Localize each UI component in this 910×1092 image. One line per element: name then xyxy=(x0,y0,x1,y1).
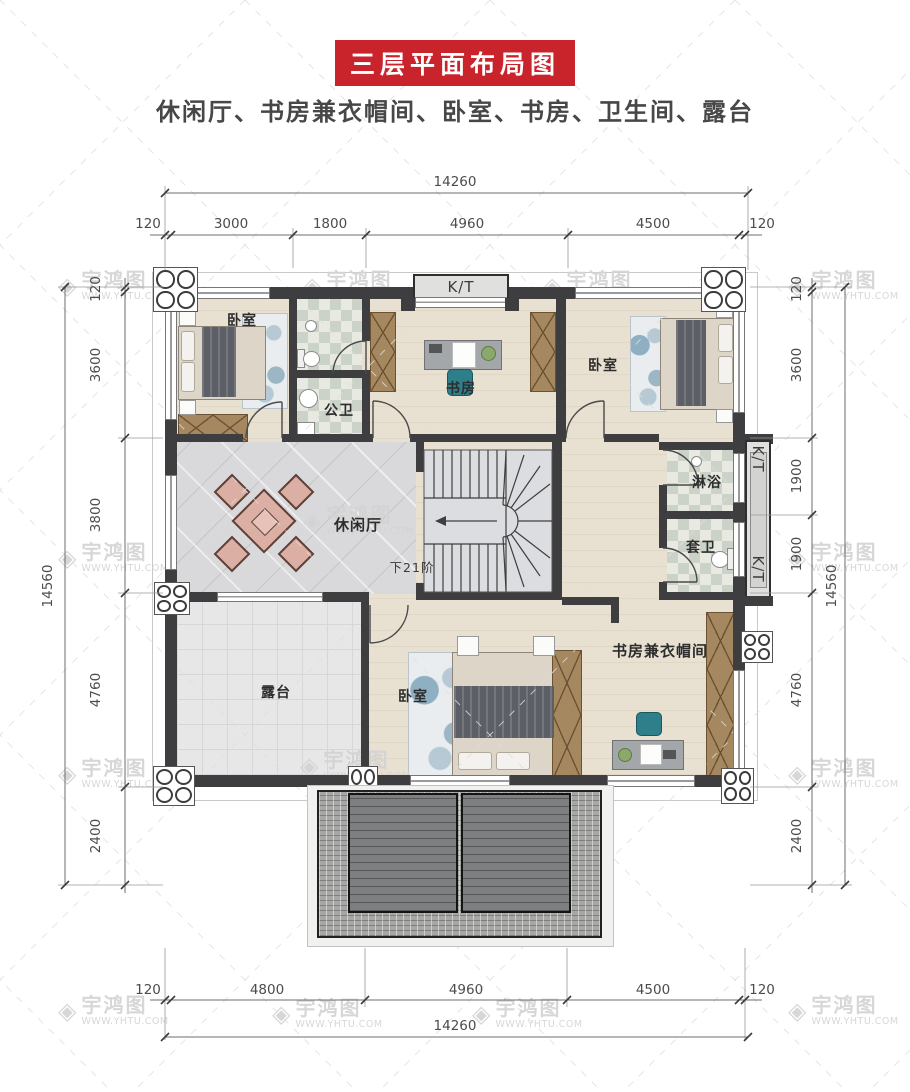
dim-top-seg5: 120 xyxy=(740,216,784,232)
window xyxy=(165,310,177,420)
wall xyxy=(165,420,177,475)
pillow xyxy=(718,324,733,352)
room-label-leisure-hall: 休闲厅 xyxy=(320,514,396,535)
dim-left-seg3: 4760 xyxy=(88,655,104,725)
wall xyxy=(505,298,519,311)
window xyxy=(733,522,745,577)
dim-right-seg1: 3600 xyxy=(789,330,805,400)
dim-top-seg0: 120 xyxy=(126,216,170,232)
watermark: ◈宇鸿图WWW.YHTU.COM xyxy=(788,995,899,1027)
yhtu-logo-icon: ◈ xyxy=(58,546,76,570)
dim-bottom-seg2: 4960 xyxy=(431,982,501,998)
room-label-shower: 淋浴 xyxy=(682,472,732,492)
wall xyxy=(611,597,619,623)
wardrobe-divider xyxy=(552,650,582,780)
blanket xyxy=(676,320,706,406)
window xyxy=(575,287,713,299)
wardrobe xyxy=(370,312,396,392)
room-label-terrace: 露台 xyxy=(248,682,304,702)
desk-papers xyxy=(452,342,476,368)
nightstand xyxy=(533,636,555,656)
toilet-bowl xyxy=(303,351,320,367)
dim-right-seg2: 1900 xyxy=(789,441,805,511)
yhtu-logo-icon: ◈ xyxy=(58,762,76,786)
floorplan-page: 三层平面布局图 休闲厅、书房兼衣帽间、卧室、书房、卫生间、露台 xyxy=(0,0,910,1092)
pillow xyxy=(496,752,530,770)
corner-column xyxy=(153,766,195,806)
plant xyxy=(481,346,496,361)
wall xyxy=(270,287,415,299)
shower-drain xyxy=(305,320,317,332)
wall xyxy=(410,434,556,442)
kt-label-right-upper: K/T xyxy=(749,444,767,474)
shower-head xyxy=(691,456,702,467)
wall xyxy=(604,434,659,442)
plant xyxy=(618,748,632,762)
room-label-study: 书房 xyxy=(436,378,486,398)
dim-bottom-seg4: 120 xyxy=(740,982,784,998)
corner-column xyxy=(721,768,754,804)
window xyxy=(733,670,745,770)
wall xyxy=(282,434,366,442)
dim-left-seg0: 120 xyxy=(88,254,104,324)
room-label-study-cloakroom: 书房兼衣帽间 xyxy=(600,640,720,661)
pillow xyxy=(181,331,195,361)
wall xyxy=(659,592,745,600)
window xyxy=(733,307,745,413)
nightstand xyxy=(179,400,196,415)
dim-bottom-seg1: 4800 xyxy=(232,982,302,998)
wall xyxy=(361,597,369,775)
room-label-bedroom-top-right: 卧室 xyxy=(578,355,628,375)
wall xyxy=(659,442,667,450)
dim-right-seg0: 120 xyxy=(789,254,805,324)
corner-column xyxy=(154,582,190,615)
laptop xyxy=(429,344,442,353)
wall xyxy=(289,370,370,378)
wall xyxy=(416,442,424,472)
kt-label-top: K/T xyxy=(433,278,489,296)
corner-column xyxy=(741,631,773,663)
dim-left-total: 14560 xyxy=(40,541,56,631)
room-label-ensuite: 套卫 xyxy=(676,537,726,557)
dim-right-seg4: 4760 xyxy=(789,655,805,725)
dim-bottom-total: 14260 xyxy=(380,1018,530,1034)
stairs-note: 下21阶 xyxy=(382,557,442,576)
yhtu-logo-icon: ◈ xyxy=(788,762,806,786)
pillow xyxy=(458,752,492,770)
page-subtitle: 休闲厅、书房兼衣帽间、卧室、书房、卫生间、露台 xyxy=(0,92,910,127)
blanket xyxy=(454,686,554,738)
watermark: ◈宇鸿图WWW.YHTU.COM xyxy=(272,998,383,1030)
pillow xyxy=(718,356,733,384)
dim-top-seg1: 3000 xyxy=(196,216,266,232)
yhtu-logo-icon: ◈ xyxy=(272,1002,290,1026)
corner-column xyxy=(153,267,198,312)
yhtu-logo-icon: ◈ xyxy=(58,999,76,1023)
dim-right-seg3: 1900 xyxy=(789,519,805,589)
wall xyxy=(401,298,415,311)
desk-chair xyxy=(636,712,662,736)
dim-bottom-seg0: 120 xyxy=(126,982,170,998)
kt-label-right-lower: K/T xyxy=(749,554,767,584)
dim-left-seg4: 2400 xyxy=(88,801,104,871)
nightstand xyxy=(179,310,196,326)
pillow xyxy=(181,362,195,392)
window xyxy=(607,775,695,787)
watermark: ◈宇鸿图WWW.YHTU.COM xyxy=(58,995,169,1027)
corner-column xyxy=(701,267,746,312)
dim-right-total: 14560 xyxy=(824,541,840,631)
room-label-bedroom-top-left: 卧室 xyxy=(212,310,272,330)
wall xyxy=(165,602,177,775)
wall xyxy=(362,299,370,341)
wall xyxy=(659,442,743,450)
page-title: 三层平面布局图 xyxy=(335,40,575,86)
blanket xyxy=(202,327,236,397)
wall xyxy=(556,299,566,442)
desk-gadget xyxy=(663,750,676,759)
room-label-public-bathroom: 公卫 xyxy=(314,400,364,420)
wall xyxy=(416,592,562,600)
dim-bottom-seg3: 4500 xyxy=(618,982,688,998)
roof-panel-right xyxy=(461,793,571,913)
wall xyxy=(177,434,243,442)
dim-right-seg5: 2400 xyxy=(789,801,805,871)
room-label-bedroom-bottom: 卧室 xyxy=(388,686,438,706)
window xyxy=(733,453,745,503)
wall xyxy=(366,434,373,442)
desk-papers xyxy=(640,744,662,765)
window xyxy=(415,297,507,308)
roof-panel-left xyxy=(348,793,458,913)
dim-top-seg3: 4960 xyxy=(432,216,502,232)
wall xyxy=(745,596,773,606)
dim-top-total: 14260 xyxy=(380,174,530,190)
watermark: ◈宇鸿图WWW.YHTU.COM xyxy=(788,758,899,790)
window xyxy=(187,287,270,299)
stairs-floor xyxy=(424,450,552,592)
wall xyxy=(562,597,611,605)
nightstand xyxy=(716,409,733,423)
wall xyxy=(659,511,745,519)
wardrobe xyxy=(530,312,556,392)
dim-top-seg4: 4500 xyxy=(618,216,688,232)
window xyxy=(217,592,323,602)
yhtu-logo-icon: ◈ xyxy=(788,999,806,1023)
nightstand xyxy=(457,636,479,656)
window xyxy=(165,475,177,570)
yhtu-logo-icon: ◈ xyxy=(58,274,76,298)
dim-left-seg1: 3600 xyxy=(88,330,104,400)
wardrobe xyxy=(706,612,735,782)
dim-left-seg2: 3800 xyxy=(88,480,104,550)
wall xyxy=(552,442,562,600)
dim-top-seg2: 1800 xyxy=(295,216,365,232)
